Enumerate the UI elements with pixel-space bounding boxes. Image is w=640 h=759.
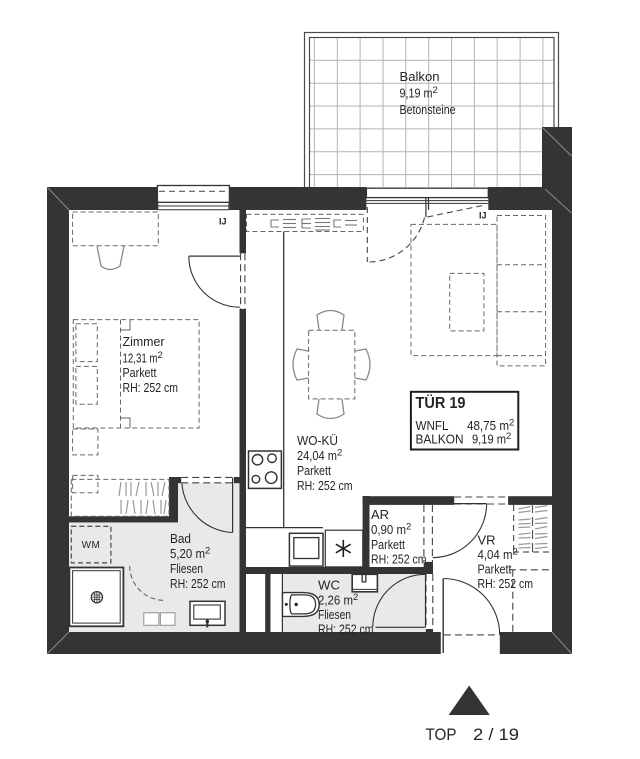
- svg-text:TOP: TOP: [426, 726, 457, 744]
- svg-text:Fliesen: Fliesen: [170, 562, 203, 576]
- svg-text:Bad: Bad: [170, 532, 191, 546]
- svg-text:9,19 m2: 9,19 m2: [472, 431, 511, 447]
- svg-text:Parkett: Parkett: [371, 538, 405, 552]
- svg-text:4,04 m2: 4,04 m2: [478, 547, 518, 563]
- svg-text:WNFL: WNFL: [416, 419, 449, 433]
- svg-text:2,26 m2: 2,26 m2: [318, 592, 358, 608]
- svg-text:AR: AR: [371, 508, 389, 522]
- svg-text:RH: 252 cm: RH: 252 cm: [371, 553, 427, 567]
- svg-text:RH: 252 cm: RH: 252 cm: [478, 577, 534, 591]
- svg-text:RH: 252 cm: RH: 252 cm: [123, 381, 179, 395]
- svg-text:2 / 19: 2 / 19: [473, 726, 519, 744]
- svg-text:5,20 m2: 5,20 m2: [170, 546, 210, 562]
- svg-text:Parkett: Parkett: [478, 563, 512, 577]
- svg-text:RH: 252 cm: RH: 252 cm: [318, 623, 374, 637]
- svg-text:RH: 252 cm: RH: 252 cm: [170, 577, 226, 591]
- svg-text:WC: WC: [318, 579, 340, 593]
- svg-text:Parkett: Parkett: [297, 464, 331, 478]
- svg-text:Fliesen: Fliesen: [318, 608, 351, 622]
- svg-text:0,90 m2: 0,90 m2: [371, 522, 411, 538]
- svg-text:VR: VR: [478, 534, 496, 548]
- svg-text:TÜR 19: TÜR 19: [416, 395, 466, 412]
- svg-text:Balkon: Balkon: [400, 70, 440, 84]
- svg-text:IJ: IJ: [479, 211, 487, 221]
- svg-text:Zimmer: Zimmer: [123, 335, 165, 349]
- svg-text:Betonsteine: Betonsteine: [400, 103, 456, 117]
- svg-text:12,31 m2: 12,31 m2: [123, 350, 163, 366]
- svg-text:BALKON: BALKON: [416, 433, 464, 447]
- svg-text:IJ: IJ: [219, 217, 227, 227]
- svg-text:WO-KÜ: WO-KÜ: [297, 434, 338, 448]
- svg-text:Parkett: Parkett: [123, 366, 157, 380]
- svg-text:WM: WM: [82, 540, 101, 551]
- svg-text:RH: 252 cm: RH: 252 cm: [297, 479, 353, 493]
- svg-text:24,04 m2: 24,04 m2: [297, 448, 342, 464]
- svg-text:9,19 m2: 9,19 m2: [400, 85, 438, 101]
